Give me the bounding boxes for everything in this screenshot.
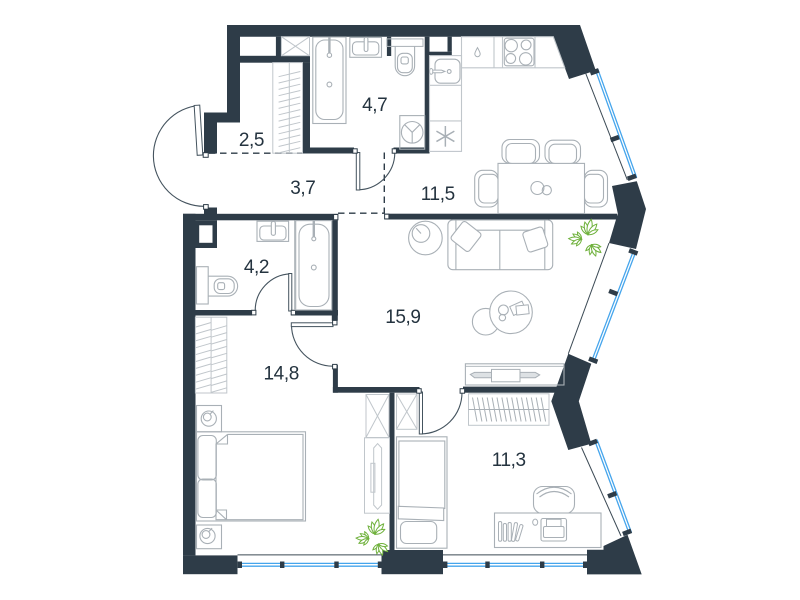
svg-text:14,8: 14,8 (264, 363, 299, 384)
svg-text:3,7: 3,7 (290, 178, 315, 199)
svg-text:15,9: 15,9 (385, 307, 420, 328)
svg-text:11,3: 11,3 (492, 450, 526, 471)
svg-text:4,7: 4,7 (362, 95, 387, 116)
svg-text:4,2: 4,2 (244, 257, 269, 278)
svg-text:11,5: 11,5 (421, 184, 455, 205)
svg-text:2,5: 2,5 (239, 130, 264, 151)
